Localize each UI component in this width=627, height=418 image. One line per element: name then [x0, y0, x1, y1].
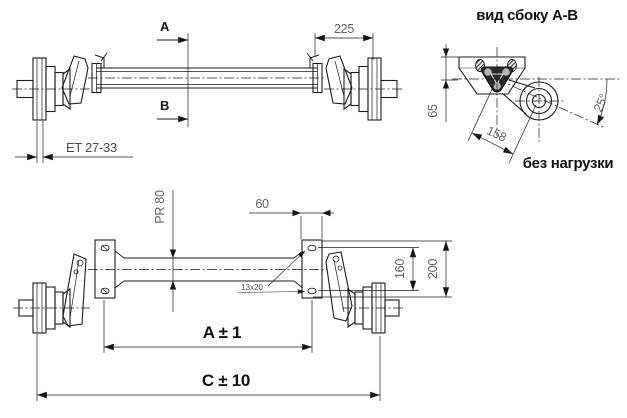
dim-overall-length	[37, 334, 380, 401]
dim-bracket-height-text: 65	[426, 104, 440, 118]
section-label-a: A	[160, 19, 170, 34]
dim-brake-width-text: 225	[334, 22, 354, 36]
dim-hole-spacing-text: 160	[393, 259, 407, 279]
drawing-sheet: A B 225 ET 27-33 вид сбоку A-B	[0, 0, 627, 418]
dim-brake-width	[315, 33, 373, 60]
tube-collar-right	[307, 53, 322, 93]
dim-arm-length	[468, 83, 536, 163]
plan-view: PR 80 60 13x20 160 200	[13, 190, 452, 401]
swing-arm-left-front	[62, 56, 88, 104]
rubber-cord	[484, 68, 492, 76]
dim-plate-width	[249, 210, 334, 239]
swing-arm-side	[497, 79, 603, 127]
dim-plate-height-text: 200	[426, 259, 440, 279]
dim-mounting-span-text: A ± 1	[203, 323, 241, 342]
hub-side	[515, 77, 566, 142]
swing-arm-left-plan	[63, 254, 86, 326]
plate-slot	[308, 288, 316, 294]
dim-tube-profile-text: PR 80	[153, 190, 167, 224]
side-view: вид сбоку A-B	[426, 7, 622, 172]
tube-collar-left	[92, 53, 107, 93]
section-label-b: B	[160, 98, 169, 113]
dim-hub-offset-text: ET 27-33	[66, 140, 117, 155]
rubber-cord	[502, 68, 510, 76]
side-view-title: вид сбоку A-B	[476, 7, 578, 24]
mounting-plate-right	[302, 240, 322, 298]
dim-plate-width-text: 60	[255, 197, 269, 211]
plate-slot	[308, 245, 316, 251]
load-condition-note: без нагрузки	[523, 155, 614, 172]
dim-arm-angle-text: 25°	[591, 92, 611, 114]
front-view: A B 225 ET 27-33	[12, 19, 402, 163]
swing-arm-right-front	[326, 56, 352, 104]
mounting-plate-left	[95, 240, 115, 298]
axle-tube-front	[88, 68, 326, 88]
axle-technical-drawing: A B 225 ET 27-33 вид сбоку A-B	[0, 0, 627, 418]
dim-tube-profile	[170, 190, 176, 312]
dim-bracket-height	[441, 44, 460, 122]
slot-callout-text: 13x20	[241, 283, 263, 292]
dim-overall-length-text: C ± 10	[202, 371, 250, 390]
